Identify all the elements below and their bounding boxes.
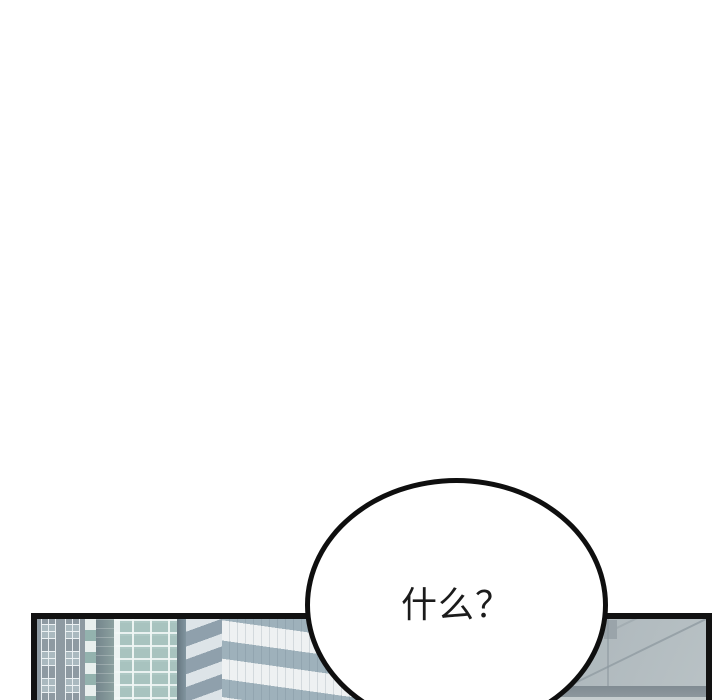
comic-page: 什么？ <box>0 0 720 700</box>
speech-bubble-text: 什么？ <box>401 587 512 623</box>
building-edge-shadow <box>177 619 186 700</box>
glass-highlight <box>116 619 120 700</box>
building-segment-strip <box>85 619 96 700</box>
white-building-left-face <box>186 619 224 700</box>
speech-bubble: 什么？ <box>305 478 608 700</box>
building-glass-tower <box>114 619 177 700</box>
building-dark-side-face <box>96 619 114 700</box>
building-gray-window-facade <box>37 619 85 700</box>
